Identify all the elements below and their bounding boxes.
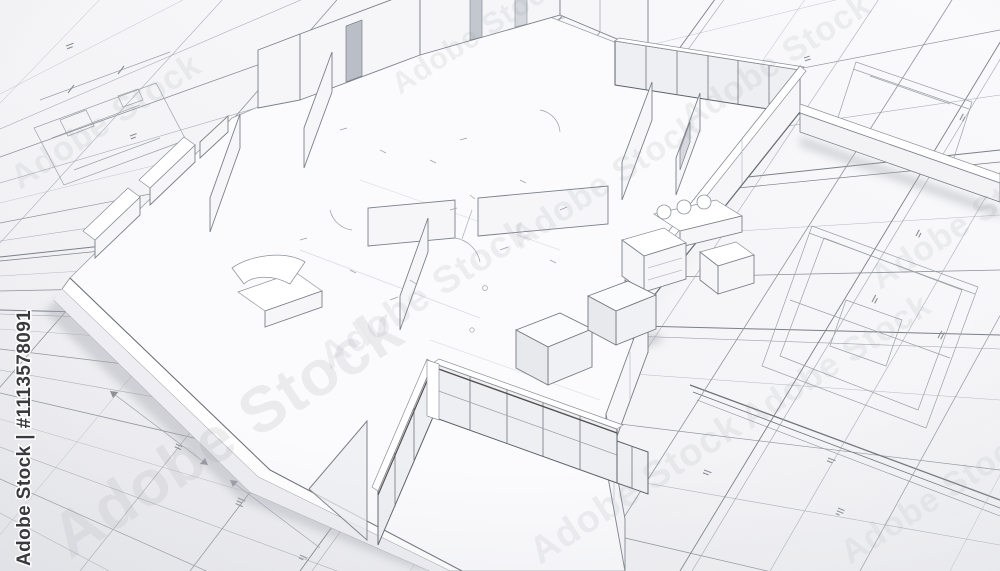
vignette-overlay [0,0,1000,571]
watermark-id-label: Adobe Stock | #1113578091 [14,310,35,566]
blueprint-scene: Adobe Stock Adobe Stock Adobe Stock Adob… [0,0,1000,571]
blueprint-illustration: Adobe Stock Adobe Stock Adobe Stock Adob… [0,0,1000,571]
